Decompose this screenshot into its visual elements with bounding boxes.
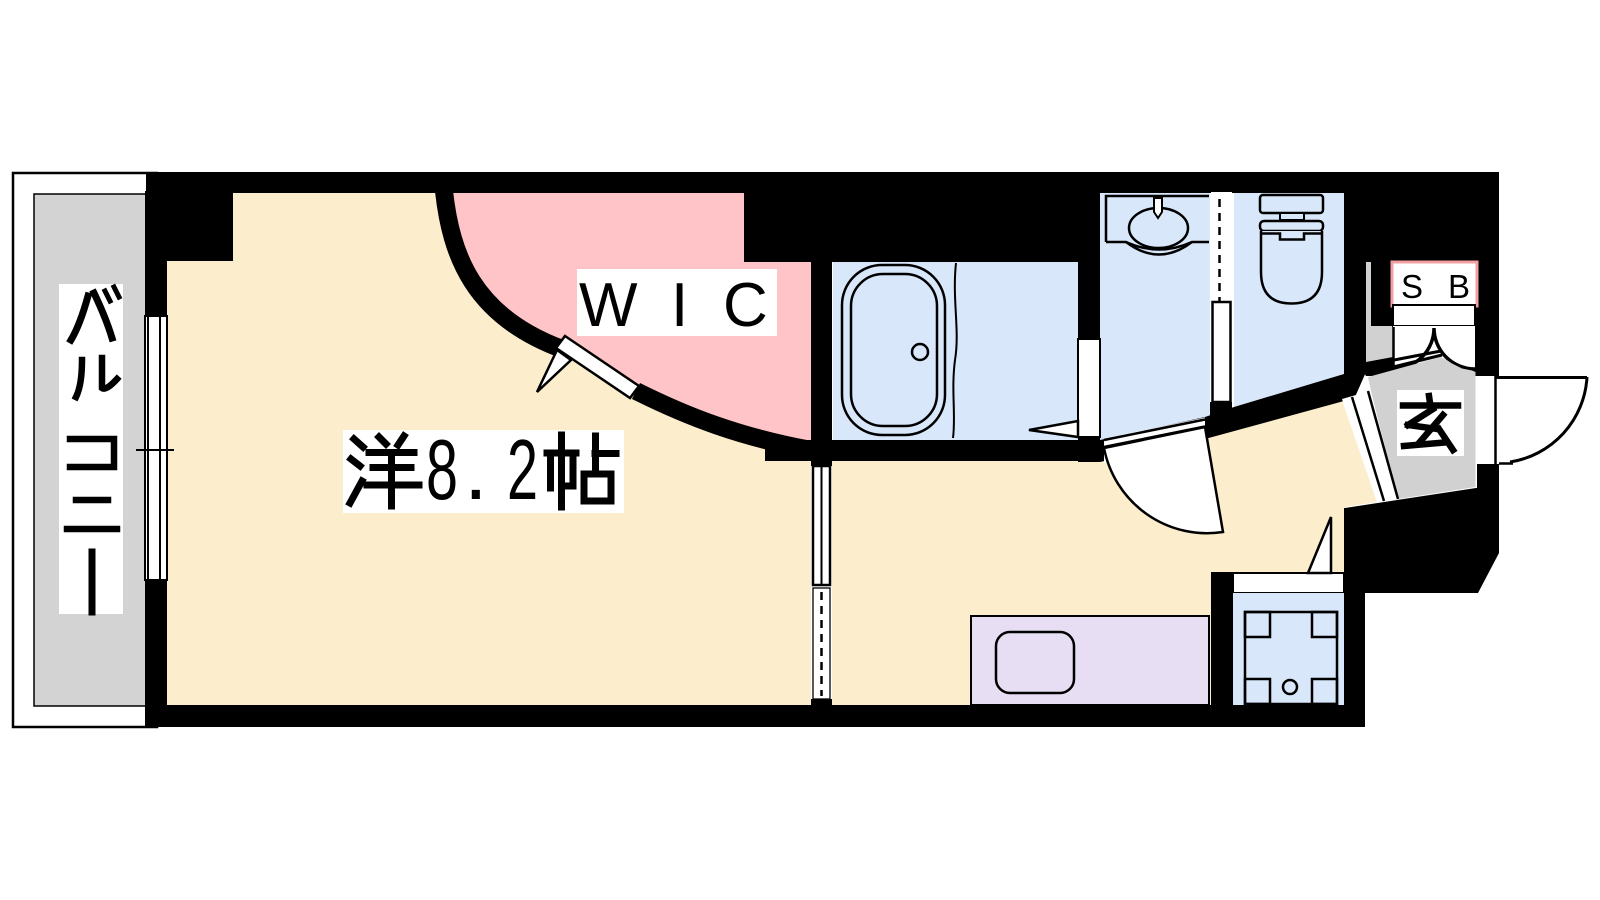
svg-text:C: C (723, 271, 768, 340)
svg-text:S: S (1401, 268, 1423, 305)
svg-text:B: B (1448, 268, 1470, 305)
svg-text:8: 8 (426, 423, 458, 518)
svg-text:.: . (464, 423, 488, 518)
svg-text:W: W (579, 271, 638, 340)
svg-text:I: I (671, 271, 688, 340)
svg-text:2: 2 (507, 423, 538, 518)
